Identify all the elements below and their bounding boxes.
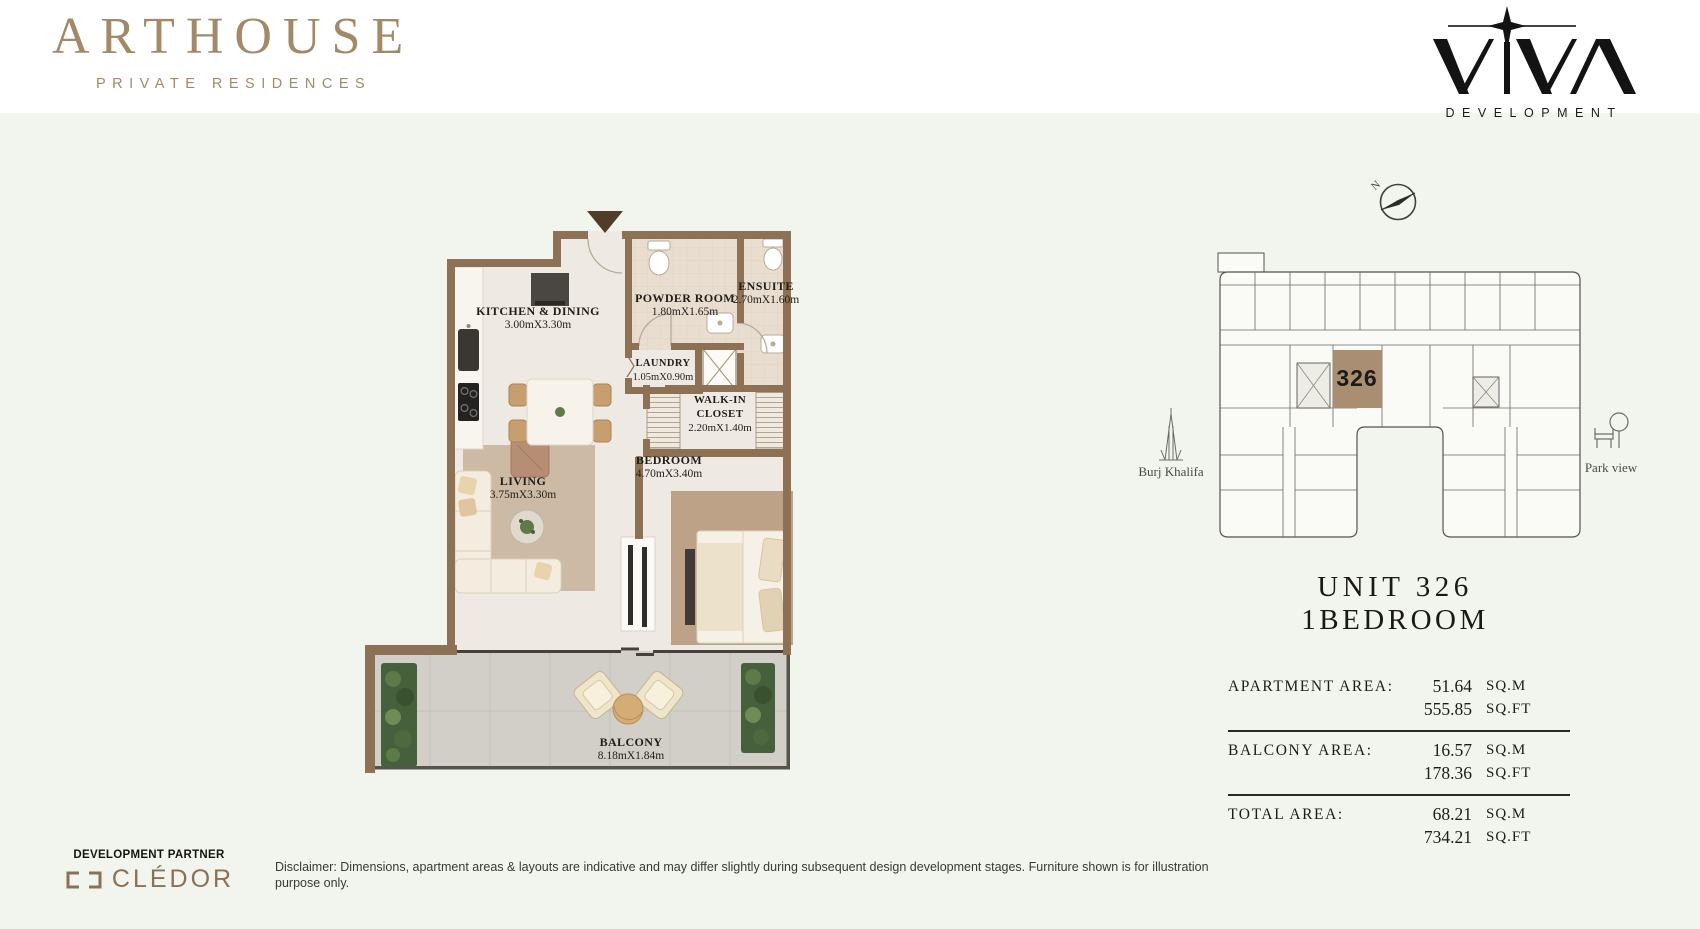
park-view-label: Park view (1585, 460, 1637, 475)
room-label-ensuite: ENSUITE 2.70mX1.60m (733, 279, 799, 307)
toilet (648, 241, 670, 250)
total-sqft-value: 734.21 (1400, 826, 1472, 849)
developer-logo: DEVELOPMENT (1428, 6, 1640, 120)
apartment-sqft-value: 555.85 (1400, 698, 1472, 721)
disclaimer-text: Disclaimer: Dimensions, apartment areas … (275, 859, 1220, 891)
dining-chair (509, 384, 527, 406)
bed-bench (685, 549, 695, 625)
partner-logo: CLÉDOR (35, 865, 263, 894)
balcony-sqm-value: 16.57 (1400, 739, 1472, 762)
toilet (763, 239, 783, 247)
development-partner-block: DEVELOPMENT PARTNER CLÉDOR (35, 849, 263, 894)
unit-number-label: 326 (1336, 365, 1377, 391)
developer-subtitle: DEVELOPMENT (1428, 106, 1640, 120)
balcony-sqft-value: 178.36 (1400, 762, 1472, 785)
partner-label: DEVELOPMENT PARTNER (35, 849, 263, 861)
compass-north-label: N (1369, 179, 1383, 193)
unit-type: 1BEDROOM (1190, 604, 1600, 637)
landmark-park-view: Park view (1576, 406, 1646, 476)
entrance-arrow-icon (587, 211, 623, 233)
room-label-powder-room: POWDER ROOM 1.80mX1.65m (635, 291, 735, 319)
brochure-page: ARTHOUSE PRIVATE RESIDENCES DEVELOPMENT (0, 0, 1700, 929)
dining-chair (593, 384, 611, 406)
room-label-kitchen: KITCHEN & DINING 3.00mX3.30m (476, 304, 600, 332)
total-sqm-value: 68.21 (1400, 803, 1472, 826)
room-label-laundry: LAUNDRY 1.05mX0.90m (633, 357, 694, 385)
brand-name: ARTHOUSE (52, 6, 414, 68)
cledor-brackets-icon (64, 871, 104, 889)
burj-khalifa-label: Burj Khalifa (1138, 464, 1203, 479)
room-label-living: LIVING 3.75mX3.30m (490, 474, 556, 502)
unit-326-highlight: 326 (1333, 350, 1382, 408)
planter (741, 663, 775, 753)
apartment-sqm-value: 51.64 (1400, 675, 1472, 698)
dining-chair (593, 420, 611, 442)
kitchen-sink (458, 329, 479, 371)
compass-icon: N (1368, 174, 1426, 228)
brand-logo: ARTHOUSE PRIVATE RESIDENCES (52, 6, 414, 92)
planter (381, 663, 417, 767)
burj-khalifa-icon (1147, 406, 1195, 462)
area-row-total: TOTAL AREA: 68.21 734.21 SQ.M SQ.FT (1228, 794, 1570, 858)
room-label-bedroom: BEDROOM 4.70mX3.40m (636, 453, 702, 481)
viva-logo-icon (1428, 6, 1640, 98)
park-view-icon (1589, 406, 1633, 458)
area-row-apartment: APARTMENT AREA: 51.64 555.85 SQ.M SQ.FT (1228, 668, 1570, 730)
area-row-balcony: BALCONY AREA: 16.57 178.36 SQ.M SQ.FT (1228, 730, 1570, 794)
key-plan: 326 (1190, 245, 1610, 545)
balcony-floor (369, 651, 790, 769)
partner-name: CLÉDOR (112, 865, 234, 894)
room-label-balcony: BALCONY 8.18mX1.84m (598, 735, 664, 763)
landmark-burj-khalifa: Burj Khalifa (1136, 406, 1206, 480)
unit-title-block: UNIT 326 1BEDROOM (1190, 570, 1600, 637)
area-table: APARTMENT AREA: 51.64 555.85 SQ.M SQ.FT … (1228, 668, 1570, 858)
brand-tagline: PRIVATE RESIDENCES (96, 76, 414, 92)
dining-chair (509, 420, 527, 442)
floor-plan: KITCHEN & DINING 3.00mX3.30m POWDER ROOM… (335, 195, 815, 785)
room-label-walk-in-closet: WALK-IN CLOSET 2.20mX1.40m (678, 393, 762, 435)
unit-title: UNIT 326 (1190, 570, 1600, 604)
sliding-door-track (621, 537, 655, 631)
